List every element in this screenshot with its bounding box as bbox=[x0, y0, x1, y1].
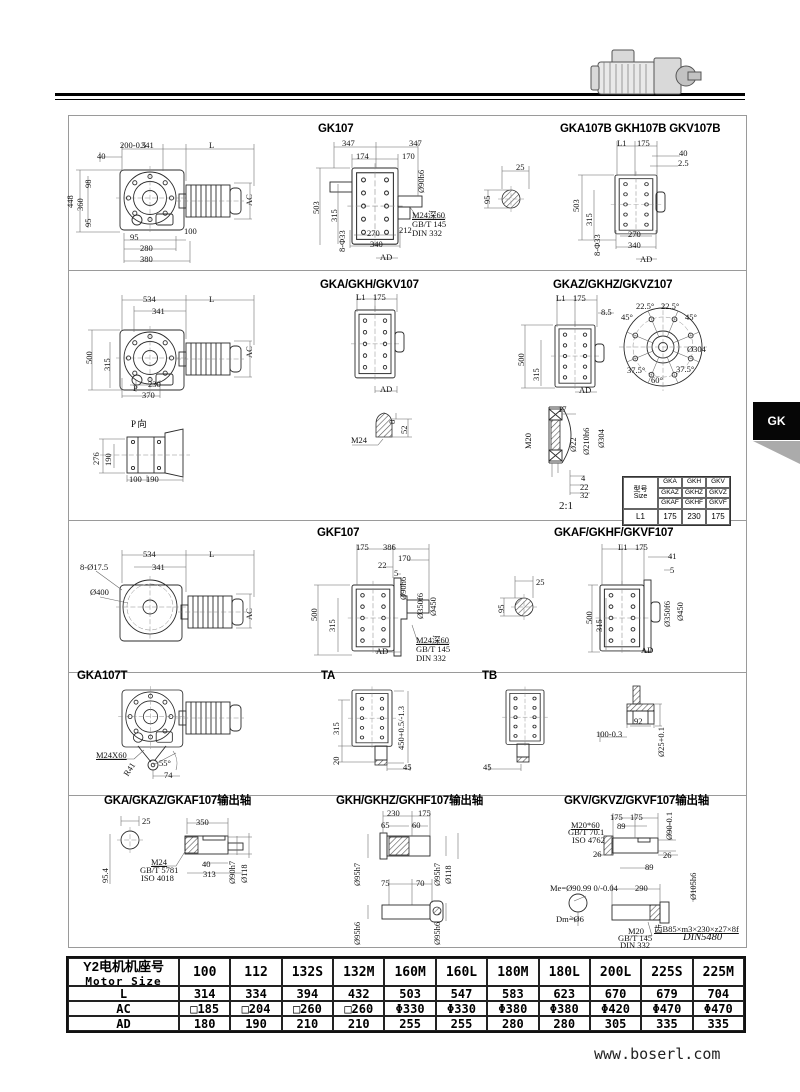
table-cell: 670 bbox=[590, 986, 641, 1001]
table-cell: 190 bbox=[230, 1016, 281, 1031]
dim-label: 26 bbox=[663, 851, 672, 860]
dim-label: 98 bbox=[84, 180, 93, 189]
dim-label: 22 bbox=[378, 561, 387, 570]
dim-label: 290 bbox=[635, 884, 648, 893]
table-cell: 394 bbox=[282, 986, 333, 1001]
table-cell: 335 bbox=[641, 1016, 692, 1031]
dim-label: Ø350f6 bbox=[663, 601, 672, 627]
spec-label: DIN 332 bbox=[412, 229, 442, 238]
dim-label: Me=Ø90.99 0/-0.04 bbox=[550, 884, 618, 893]
table-cell: Φ470 bbox=[641, 1001, 692, 1016]
table-cell: 255 bbox=[384, 1016, 435, 1031]
drawing-title: GKV/GKVZ/GKVF107输出轴 bbox=[564, 796, 709, 808]
dim-label: 280 bbox=[140, 244, 153, 253]
dim-label: Ø90h6 bbox=[417, 170, 426, 193]
dim-label: Ø118 bbox=[240, 864, 249, 883]
dim-label: M24 bbox=[351, 436, 367, 445]
table-cell: 210 bbox=[333, 1016, 384, 1031]
din-standard-label: DIN5480 bbox=[683, 933, 722, 944]
dim-label: 45 bbox=[403, 763, 412, 772]
dim-label: 60 bbox=[412, 821, 421, 830]
dim-label: Ø95h6 bbox=[353, 922, 362, 945]
table-cell: 180 bbox=[179, 1016, 230, 1031]
table-cell: 547 bbox=[436, 986, 487, 1001]
dim-label: 313 bbox=[203, 870, 216, 879]
drawing-title: GKAF/GKHF/GKVF107 bbox=[554, 528, 673, 540]
dim-label: 350 bbox=[196, 818, 209, 827]
dim-label: 315 bbox=[328, 619, 337, 632]
table-cell: 305 bbox=[590, 1016, 641, 1031]
dim-label: 315 bbox=[595, 619, 604, 632]
col-header: 132S bbox=[282, 958, 333, 986]
tb-drawing bbox=[489, 687, 548, 771]
drawing-title: TB bbox=[482, 671, 497, 683]
dim-label: Ø400 bbox=[90, 588, 109, 597]
col-header: 225M bbox=[693, 958, 744, 986]
dim-label: Dm=Ø6 bbox=[556, 915, 584, 924]
dim-label: 100 bbox=[184, 227, 197, 236]
table-cell: 503 bbox=[384, 986, 435, 1001]
table-cell: 432 bbox=[333, 986, 384, 1001]
shaft-section-drawing bbox=[500, 576, 537, 620]
table-cell: GKAF bbox=[658, 498, 682, 509]
dim-label: 170 bbox=[398, 554, 411, 563]
drawing-title: GKF107 bbox=[317, 528, 359, 540]
dim-label: 175 bbox=[635, 543, 648, 552]
col-header: 225S bbox=[641, 958, 692, 986]
row-label: AC bbox=[68, 1001, 179, 1016]
dim-label: 175 bbox=[356, 543, 369, 552]
spec-label: M24X60 bbox=[96, 751, 127, 760]
table-cell: GKHZ bbox=[682, 488, 706, 499]
dim-label: 40 bbox=[97, 152, 106, 161]
dim-label: L bbox=[209, 141, 214, 150]
dim-label: AD bbox=[579, 386, 591, 395]
dim-label: 386 bbox=[383, 543, 396, 552]
dim-label: 174 bbox=[356, 152, 369, 161]
dim-label: 92 bbox=[634, 717, 643, 726]
dim-label: 37.5° bbox=[627, 366, 645, 375]
dim-label: 347 bbox=[409, 139, 422, 148]
type-header-cn: 型号 bbox=[634, 486, 648, 493]
gka-side-drawing bbox=[351, 294, 404, 393]
dim-label: 95 bbox=[84, 219, 93, 228]
table-cell: GKVF bbox=[706, 498, 730, 509]
table-cell: 623 bbox=[539, 986, 590, 1001]
dim-label: 52 bbox=[400, 426, 409, 435]
dim-label: Ø304 bbox=[597, 429, 606, 448]
table-cell: GKA bbox=[658, 477, 682, 488]
col-header: 180M bbox=[487, 958, 538, 986]
gk107-front-drawing bbox=[76, 144, 254, 263]
drawing-title: GKA/GKAZ/GKAF107输出轴 bbox=[104, 796, 251, 808]
dim-label: 25 bbox=[536, 578, 545, 587]
gearmotor-photo-icon bbox=[591, 50, 701, 94]
dim-label: 534 bbox=[143, 295, 156, 304]
table-cell: 175 bbox=[658, 509, 682, 525]
table-cell: □185 bbox=[179, 1001, 230, 1016]
dim-label: 8.5 bbox=[601, 308, 612, 317]
dim-label: 89 bbox=[645, 863, 654, 872]
dim-label: Ø450 bbox=[676, 602, 685, 621]
dim-label: AD bbox=[640, 255, 652, 264]
dim-label: 315 bbox=[532, 368, 541, 381]
dim-label: 55° bbox=[159, 759, 171, 768]
dim-label: 175 bbox=[637, 139, 650, 148]
dim-label: 175 bbox=[373, 293, 386, 302]
table-cell: GKVZ bbox=[706, 488, 730, 499]
catalog-page: GK107 GKA107B GKH107B GKV107B GKA/GKH/GK… bbox=[0, 0, 800, 1092]
drawing-title: GKH/GKHZ/GKHF107输出轴 bbox=[336, 796, 483, 808]
dim-label: AD bbox=[380, 253, 392, 262]
dim-label: 175 bbox=[573, 294, 586, 303]
table-cell: 280 bbox=[487, 1016, 538, 1031]
dim-label: 100-0.3 bbox=[596, 730, 622, 739]
table-cell: GKHF bbox=[682, 498, 706, 509]
dim-label: 500 bbox=[85, 351, 94, 364]
dim-label: 534 bbox=[143, 550, 156, 559]
dim-label: 503 bbox=[572, 199, 581, 212]
dim-label: Ø90-0.1 bbox=[665, 812, 674, 840]
p-view-label: P 向 bbox=[131, 420, 146, 429]
dim-label: 340 bbox=[370, 240, 383, 249]
dim-label: Ø90h7 bbox=[228, 861, 237, 884]
dim-label: 45° bbox=[685, 313, 697, 322]
dim-label: 500 bbox=[310, 608, 319, 621]
dim-label: 8-Φ33 bbox=[338, 230, 347, 252]
dim-label: 230 bbox=[148, 380, 161, 389]
website-text: www.boserl.com bbox=[594, 1045, 720, 1063]
table-cell: 255 bbox=[436, 1016, 487, 1031]
dim-label: 100 bbox=[129, 475, 142, 484]
dim-label: 315 bbox=[585, 213, 594, 226]
table-cell: 280 bbox=[539, 1016, 590, 1031]
gka107t-drawing bbox=[98, 686, 244, 779]
dim-label: 25 bbox=[142, 817, 151, 826]
col-header: 180L bbox=[539, 958, 590, 986]
drawing-title: GKA/GKH/GKV107 bbox=[320, 280, 419, 292]
gka-front-drawing bbox=[88, 295, 254, 398]
dim-label: 170 bbox=[402, 152, 415, 161]
dim-label: 380 bbox=[140, 255, 153, 264]
spec-label: ISO 4762 bbox=[572, 836, 605, 845]
dim-label: 41 bbox=[668, 552, 677, 561]
dim-label: 65 bbox=[381, 821, 390, 830]
dim-label: 340 bbox=[628, 241, 641, 250]
dim-label: 500 bbox=[585, 611, 594, 624]
drawing-title: GKA107T bbox=[77, 671, 127, 683]
spec-label: DIN 332 bbox=[620, 941, 650, 950]
dim-label: L bbox=[209, 295, 214, 304]
dim-label: 32 bbox=[580, 491, 589, 500]
table-cell: □204 bbox=[230, 1001, 281, 1016]
dim-label: 315 bbox=[330, 209, 339, 222]
dim-label: AC bbox=[245, 608, 254, 620]
dim-label: Ø304 bbox=[687, 345, 706, 354]
table-cell: 335 bbox=[693, 1016, 744, 1031]
dim-label: L1 bbox=[556, 294, 565, 303]
table-cell: GKV bbox=[706, 477, 730, 488]
dim-label: 25 bbox=[516, 163, 525, 172]
table-cell: GKAZ bbox=[658, 488, 682, 499]
dim-label: 37.5° bbox=[676, 365, 694, 374]
dim-label: 270 bbox=[628, 230, 641, 239]
type-header-en: Size bbox=[634, 493, 648, 500]
dim-label: 20 bbox=[332, 757, 341, 766]
dim-label: 17 bbox=[558, 405, 567, 414]
drawing-title: GKAZ/GKHZ/GKVZ107 bbox=[553, 280, 672, 292]
dim-label: Ø450 bbox=[429, 597, 438, 616]
table-cell: □260 bbox=[282, 1001, 333, 1016]
dim-label: 45 bbox=[483, 763, 492, 772]
dim-label: 40 bbox=[202, 860, 211, 869]
type-size-table: 型号 Size GKA GKH GKV GKAZ GKHZ GKVZ GKAF … bbox=[622, 476, 731, 526]
dim-label: L bbox=[209, 550, 214, 559]
motor-table-header-cell: Y2电机机座号 Motor Size bbox=[68, 958, 179, 986]
row-label: AD bbox=[68, 1016, 179, 1031]
shaft-section-drawing bbox=[484, 166, 529, 212]
table-cell: Φ420 bbox=[590, 1001, 641, 1016]
dim-label: Ø95h6 bbox=[433, 922, 442, 945]
dim-label: 212 bbox=[399, 226, 412, 235]
dim-label: 503 bbox=[312, 201, 321, 214]
table-cell: 175 bbox=[706, 509, 730, 525]
table-cell: Φ330 bbox=[436, 1001, 487, 1016]
dim-label: 8-Φ33 bbox=[593, 234, 602, 256]
table-cell: □260 bbox=[333, 1001, 384, 1016]
dim-label: 95 bbox=[483, 196, 492, 205]
dim-label: 500 bbox=[517, 353, 526, 366]
col-header: 112 bbox=[230, 958, 281, 986]
dim-label: 60° bbox=[651, 376, 663, 385]
dim-label: AD bbox=[380, 385, 392, 394]
dim-label: L1 bbox=[618, 543, 627, 552]
tab-shadow-wedge bbox=[753, 441, 800, 464]
dim-label: 40 bbox=[679, 149, 688, 158]
dim-label: AD bbox=[641, 646, 653, 655]
dim-label: 70 bbox=[416, 879, 425, 888]
table-cell: 230 bbox=[682, 509, 706, 525]
dim-label: P bbox=[133, 384, 138, 393]
table-cell: L1 bbox=[623, 509, 658, 525]
drawing-title: GK107 bbox=[318, 124, 353, 136]
row-label: L bbox=[68, 986, 179, 1001]
table-cell: 679 bbox=[641, 986, 692, 1001]
table-cell: Φ470 bbox=[693, 1001, 744, 1016]
table-cell: 334 bbox=[230, 986, 281, 1001]
dim-label: 2.5 bbox=[678, 159, 689, 168]
dim-label: Ø22 bbox=[569, 437, 578, 452]
dim-label: 450+0.5/-1.3 bbox=[397, 706, 406, 750]
dim-label: 8 bbox=[388, 420, 397, 424]
dim-label: 74 bbox=[164, 771, 173, 780]
table-cell: Φ380 bbox=[539, 1001, 590, 1016]
col-header: 160M bbox=[384, 958, 435, 986]
table-cell: Φ330 bbox=[384, 1001, 435, 1016]
dim-label: 22.5° bbox=[636, 302, 654, 311]
page-index-tab: GK bbox=[753, 402, 800, 440]
dim-label: 95.4 bbox=[101, 868, 110, 883]
dim-label: L1 bbox=[356, 293, 365, 302]
spec-label: DIN 332 bbox=[416, 654, 446, 663]
table-cell: Φ380 bbox=[487, 1001, 538, 1016]
dim-label: 448 bbox=[66, 195, 75, 208]
dim-label: 347 bbox=[342, 139, 355, 148]
gkaf-side-drawing bbox=[588, 544, 672, 655]
dim-label: M20 bbox=[524, 433, 533, 449]
dim-label: 8-Ø17.5 bbox=[80, 563, 108, 572]
col-header: 132M bbox=[333, 958, 384, 986]
dim-label: Ø118 bbox=[444, 865, 453, 884]
col-header: 160L bbox=[436, 958, 487, 986]
dim-label: Ø210h6 bbox=[582, 428, 591, 455]
dim-label: 360 bbox=[76, 198, 85, 211]
dim-label: 5 bbox=[670, 566, 674, 575]
dim-label: Ø90h6 bbox=[399, 577, 408, 600]
drawing-title: GKA107B GKH107B GKV107B bbox=[560, 124, 720, 136]
type-table-header: 型号 Size bbox=[623, 477, 658, 509]
table-cell: 583 bbox=[487, 986, 538, 1001]
dim-label: 45° bbox=[621, 313, 633, 322]
col-header: 200L bbox=[590, 958, 641, 986]
dim-label: 315 bbox=[103, 358, 112, 371]
dim-label: Ø95h7 bbox=[433, 863, 442, 886]
dim-label: 341 bbox=[141, 141, 154, 150]
table-cell: GKH bbox=[682, 477, 706, 488]
dim-label: AC bbox=[245, 346, 254, 358]
spec-label: ISO 4018 bbox=[141, 874, 174, 883]
dim-label: L1 bbox=[617, 139, 626, 148]
drawing-title: TA bbox=[321, 671, 335, 683]
dim-label: 230 bbox=[387, 809, 400, 818]
scale-label: 2:1 bbox=[559, 501, 573, 512]
dim-label: Ø25+0.1 bbox=[657, 727, 666, 757]
motor-size-table: Y2电机机座号 Motor Size 100 112 132S 132M 160… bbox=[66, 956, 746, 1033]
dim-label: 95 bbox=[130, 233, 139, 242]
dim-label: AC bbox=[245, 194, 254, 206]
dim-label: 276 bbox=[92, 452, 101, 465]
dim-label: 341 bbox=[152, 563, 165, 572]
dim-label: 190 bbox=[104, 453, 113, 466]
table-cell: 704 bbox=[693, 986, 744, 1001]
dim-label: AD bbox=[376, 647, 388, 656]
dim-label: Ø105h6 bbox=[689, 873, 698, 900]
motor-header-cn: Y2电机机座号 bbox=[83, 956, 164, 975]
col-header: 100 bbox=[179, 958, 230, 986]
dim-label: 190 bbox=[146, 475, 159, 484]
table-cell: 314 bbox=[179, 986, 230, 1001]
dim-label: 175 bbox=[418, 809, 431, 818]
dim-label: 341 bbox=[152, 307, 165, 316]
dim-label: 89 bbox=[617, 822, 626, 831]
dim-label: 26 bbox=[593, 850, 602, 859]
dim-label: 22.5° bbox=[661, 302, 679, 311]
dim-label: 95 bbox=[497, 605, 506, 614]
dim-label: 75 bbox=[381, 879, 390, 888]
dim-label: Ø95h7 bbox=[353, 863, 362, 886]
dim-label: 270 bbox=[367, 229, 380, 238]
dim-label: 370 bbox=[142, 391, 155, 400]
table-cell: 210 bbox=[282, 1016, 333, 1031]
dim-label: 175 bbox=[630, 813, 643, 822]
dim-label: 315 bbox=[332, 722, 341, 735]
gkf-front-drawing bbox=[96, 550, 254, 641]
dim-label: Ø350f6 bbox=[416, 593, 425, 619]
